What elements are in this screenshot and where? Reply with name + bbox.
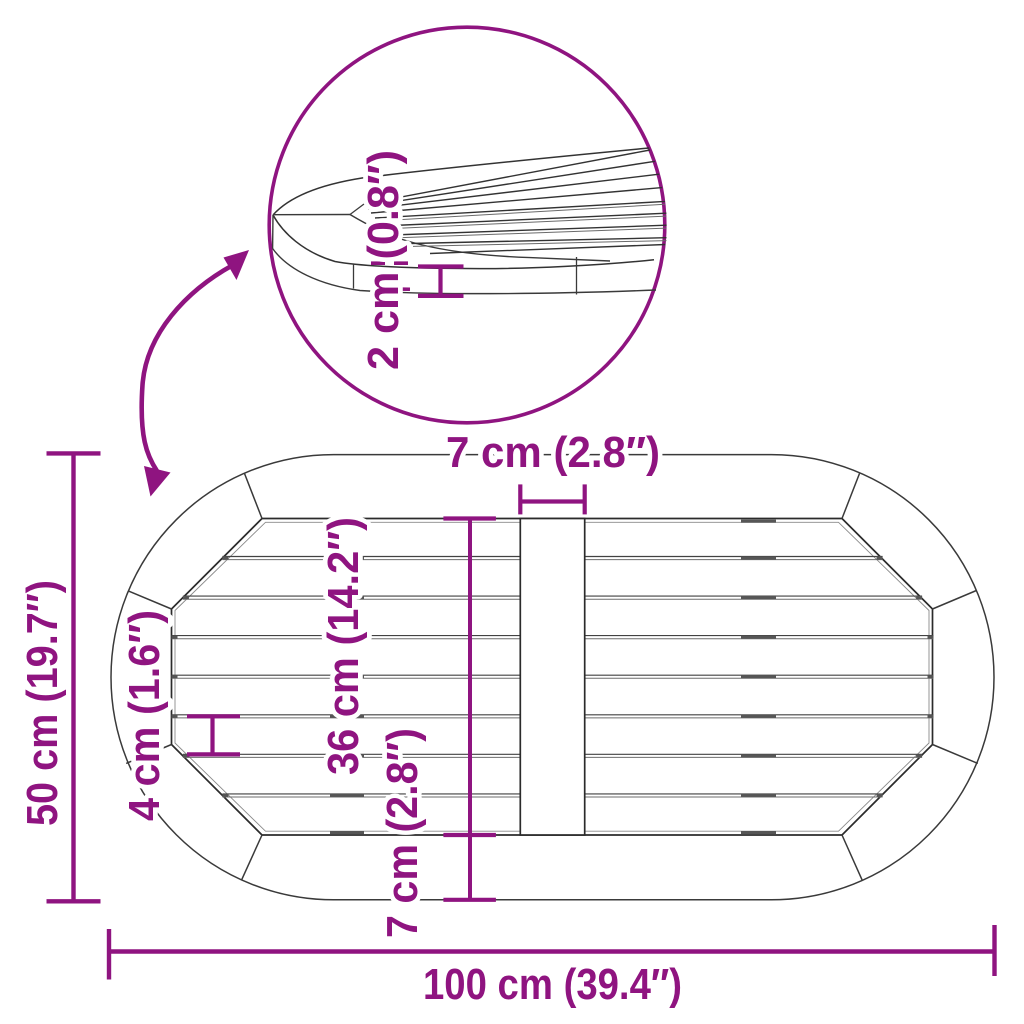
svg-text:4 cm (1.6″): 4 cm (1.6″) — [120, 610, 169, 821]
svg-text:36 cm (14.2″): 36 cm (14.2″) — [319, 517, 368, 775]
svg-text:7 cm (2.8″): 7 cm (2.8″) — [378, 728, 427, 938]
svg-text:100 cm (39.4″): 100 cm (39.4″) — [423, 960, 682, 1009]
svg-text:2 cm (0.8″): 2 cm (0.8″) — [359, 150, 408, 370]
svg-text:50 cm (19.7″): 50 cm (19.7″) — [18, 580, 67, 826]
svg-text:7 cm (2.8″): 7 cm (2.8″) — [446, 428, 660, 477]
